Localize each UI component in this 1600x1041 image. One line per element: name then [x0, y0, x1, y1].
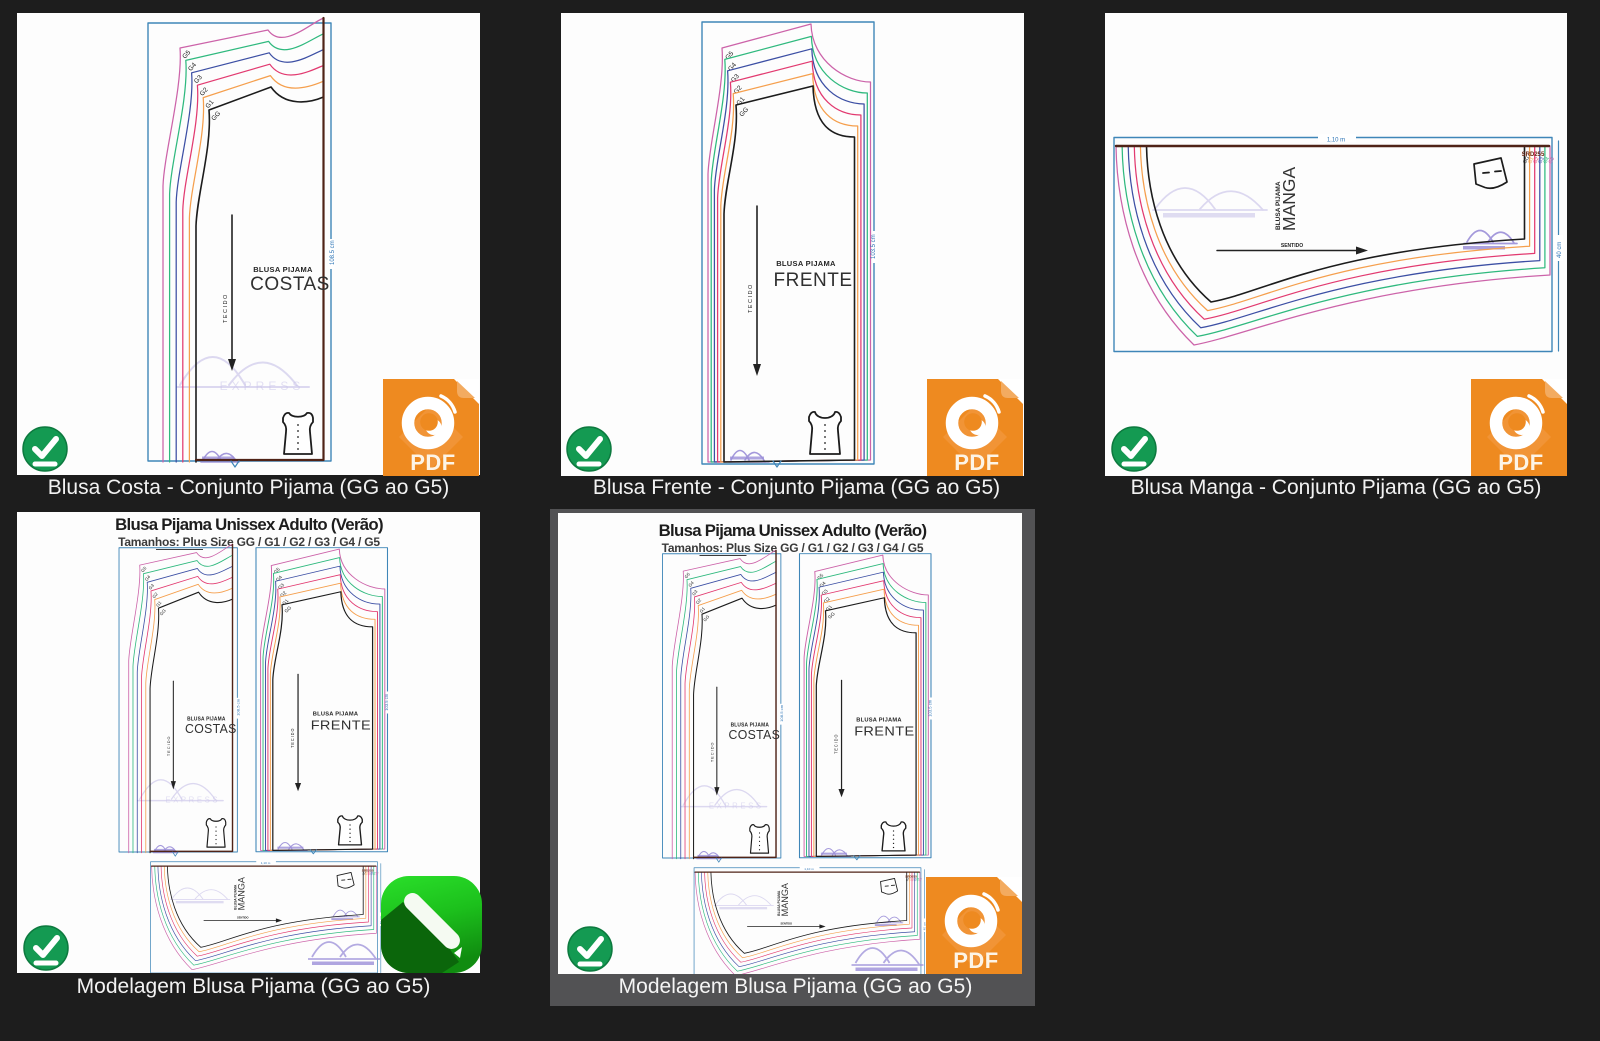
svg-text:SENTIDO: SENTIDO [237, 916, 248, 920]
svg-text:G4: G4 [275, 574, 284, 582]
svg-text:SENTIDO: SENTIDO [781, 922, 792, 926]
svg-text:FRENTE: FRENTE [854, 723, 914, 738]
svg-text:G1: G1 [281, 598, 290, 606]
svg-text:T E C I D O: T E C I D O [711, 742, 715, 762]
svg-text:G5: G5 [684, 571, 692, 579]
svg-text:GG: GG [210, 110, 222, 122]
svg-text:GG: GG [738, 106, 750, 118]
svg-text:PDF: PDF [410, 450, 456, 475]
svg-text:MANGA: MANGA [236, 876, 246, 910]
svg-text:G3: G3 [148, 582, 156, 590]
svg-text:Tamanhos: Plus Size GG / G1 /: Tamanhos: Plus Size GG / G1 / G2 / G3 / … [118, 535, 380, 549]
svg-text:G2: G2 [279, 590, 288, 598]
svg-text:SRD255: SRD255 [1522, 152, 1545, 158]
svg-text:1,10 m: 1,10 m [804, 867, 814, 871]
svg-text:SRD255: SRD255 [362, 868, 374, 872]
svg-text:T E C I D O: T E C I D O [167, 736, 171, 756]
svg-text:G4: G4 [144, 574, 152, 582]
svg-text:G4: G4 [687, 580, 695, 588]
svg-text:40 cm: 40 cm [1557, 242, 1563, 258]
svg-text:1,10 m: 1,10 m [261, 861, 271, 865]
svg-text:G3: G3 [821, 588, 830, 596]
svg-text:T E C I D O: T E C I D O [223, 294, 229, 323]
svg-text:T E C I D O: T E C I D O [748, 284, 754, 313]
svg-text:MANGA: MANGA [1279, 167, 1299, 232]
svg-text:BLUSA PIJAMA: BLUSA PIJAMA [253, 265, 313, 274]
svg-text:SRD255: SRD255 [905, 874, 917, 878]
svg-text:GG: GG [702, 613, 710, 622]
svg-text:G4: G4 [818, 580, 827, 588]
svg-text:G3: G3 [277, 582, 286, 590]
svg-text:FRENTE: FRENTE [774, 270, 853, 291]
svg-text:Blusa Pijama Unissex Adulto (V: Blusa Pijama Unissex Adulto (Verão) [115, 515, 383, 534]
svg-text:FRENTE: FRENTE [311, 717, 371, 732]
svg-text:1,10 m: 1,10 m [1327, 138, 1345, 144]
svg-text:G5: G5 [816, 573, 825, 581]
svg-text:COSTAS: COSTAS [185, 721, 237, 737]
svg-text:108.5 cm: 108.5 cm [330, 240, 336, 265]
svg-text:PDF: PDF [954, 450, 1000, 475]
svg-text:PDF: PDF [953, 948, 999, 973]
svg-text:MANGA: MANGA [780, 882, 790, 916]
svg-text:108.5 cm: 108.5 cm [235, 698, 240, 716]
svg-text:SENTIDO: SENTIDO [1281, 243, 1303, 249]
svg-text:G3: G3 [691, 588, 699, 596]
svg-text:BLUSA PIJAMA: BLUSA PIJAMA [776, 259, 836, 268]
svg-text:103.5 cm: 103.5 cm [871, 234, 877, 259]
svg-text:Tamanhos: Plus Size GG / G1 /: Tamanhos: Plus Size GG / G1 / G2 / G3 / … [662, 541, 924, 555]
svg-text:G1: G1 [825, 604, 834, 612]
svg-text:EXPRESS: EXPRESS [709, 801, 764, 810]
svg-text:PDF: PDF [1498, 450, 1544, 475]
svg-text:T E C I D O: T E C I D O [290, 728, 295, 747]
svg-text:EXPRESS: EXPRESS [165, 795, 220, 804]
svg-text:GG: GG [159, 607, 167, 616]
svg-text:G5: G5 [140, 565, 148, 573]
svg-text:COSTAS: COSTAS [250, 274, 330, 295]
svg-text:EXPRESS: EXPRESS [220, 379, 305, 393]
svg-text:COSTAS: COSTAS [729, 727, 781, 743]
svg-text:103.5 cm: 103.5 cm [928, 699, 933, 716]
svg-text:G5: G5 [273, 567, 282, 575]
svg-text:Blusa Pijama Unissex Adulto (V: Blusa Pijama Unissex Adulto (Verão) [659, 521, 927, 540]
svg-text:G2: G2 [823, 596, 832, 604]
svg-text:108.5 cm: 108.5 cm [779, 704, 784, 722]
svg-text:T E C I D O: T E C I D O [834, 734, 839, 753]
svg-text:103.5 cm: 103.5 cm [384, 693, 389, 710]
